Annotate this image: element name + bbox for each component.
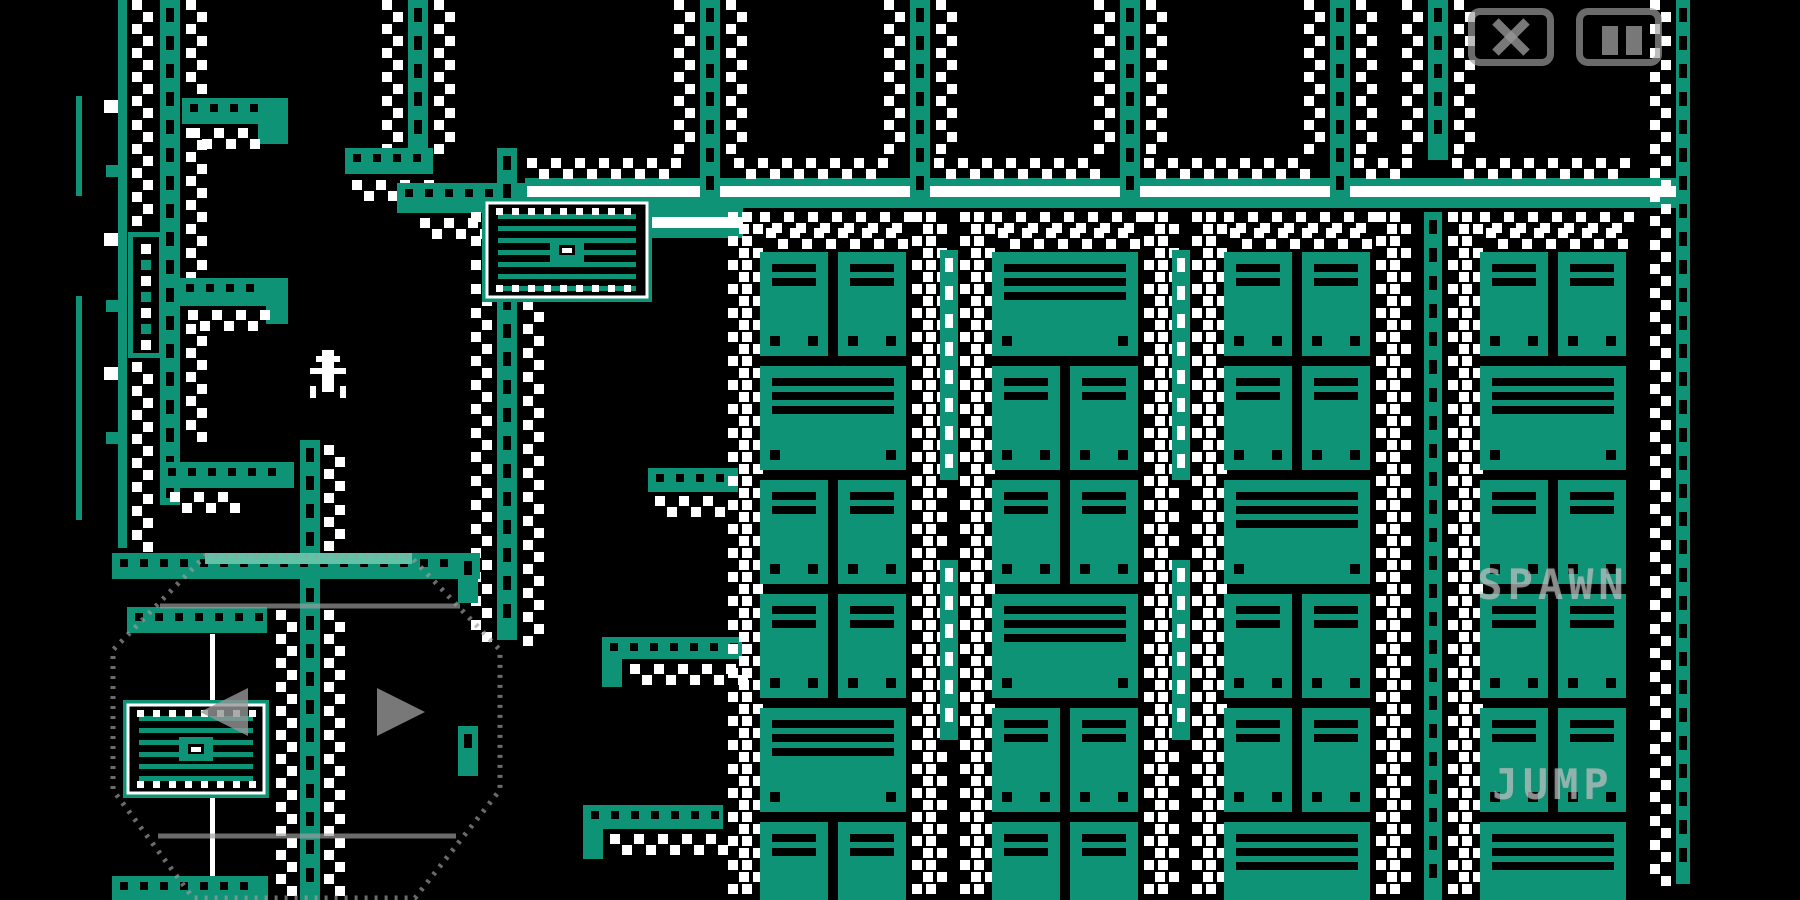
close-icon — [1491, 17, 1531, 57]
jump-button[interactable]: JUMP — [1492, 760, 1613, 809]
close-button[interactable] — [1468, 8, 1554, 66]
joystick-octagon — [0, 0, 560, 900]
pause-button[interactable] — [1576, 8, 1662, 66]
game-stage: SPAWN JUMP — [0, 0, 1800, 900]
joystick-overlay[interactable] — [0, 0, 560, 900]
spawn-button[interactable]: SPAWN — [1477, 560, 1628, 609]
